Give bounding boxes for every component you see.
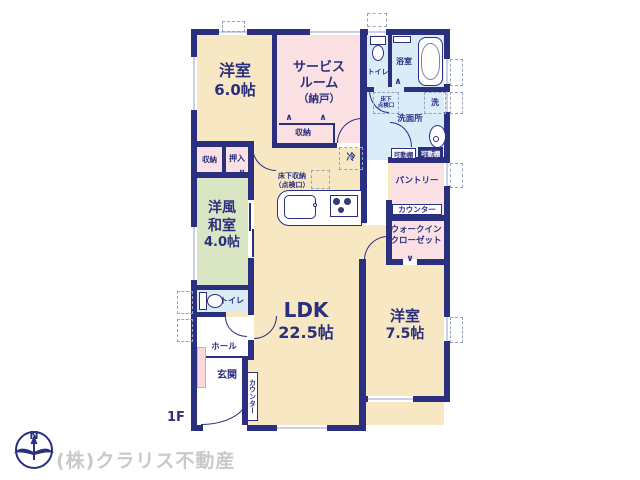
- closet-line: [333, 123, 335, 143]
- window: [368, 396, 413, 402]
- exterior-box: [177, 319, 193, 342]
- room-label-entrance: 玄関: [208, 370, 246, 383]
- wash-basin-drain: [433, 136, 439, 142]
- room-label-toilet-lower: トイレ: [218, 296, 246, 306]
- opening-mark: ∨: [403, 255, 417, 264]
- floor-label: 1F: [167, 410, 193, 425]
- oshiire-label: 押入: [226, 154, 248, 164]
- wall: [359, 259, 366, 431]
- closet-line: [279, 123, 333, 125]
- room-label-washitsu: 洋風 和室 4.0帖: [198, 200, 246, 251]
- washer-label: 洗: [431, 98, 439, 107]
- opening-mark: ∨: [235, 169, 249, 178]
- wall: [413, 396, 450, 402]
- vent-box: [367, 13, 387, 27]
- folding-door-mark: ∧: [316, 114, 330, 123]
- underfloor-inspection-hatch: 床下 点検口: [373, 92, 399, 114]
- closet-label: 収納: [197, 155, 222, 164]
- bathroom-folding-door-mark: ∧: [391, 78, 405, 87]
- window: [277, 425, 327, 431]
- toilet-bowl: [372, 45, 384, 61]
- room-label-bathroom: 浴室: [390, 57, 418, 67]
- service-closet-label: 収納: [283, 128, 323, 138]
- toilet-tank: [199, 292, 207, 310]
- kitchen-faucet: [313, 203, 317, 207]
- wall: [191, 312, 226, 317]
- wall: [386, 29, 450, 35]
- wall: [388, 259, 403, 265]
- ldk-counter: カウンター: [247, 372, 258, 421]
- movable-shelf-label: 可動棚: [394, 149, 414, 159]
- wall: [444, 29, 450, 59]
- sliding-door-line: [252, 229, 254, 257]
- washer-space: 洗: [424, 92, 446, 114]
- door-leaf: [360, 118, 362, 143]
- room-label-wic: ウォークイン クローゼット: [387, 225, 445, 246]
- wall: [277, 143, 337, 148]
- folding-door-mark: ∧: [282, 114, 296, 123]
- wall: [247, 425, 277, 431]
- pantry-counter: カウンター: [392, 204, 442, 215]
- window: [191, 227, 197, 280]
- room-label-service: サービス ルーム （納戸）: [277, 60, 361, 106]
- refrigerator-space: 冷: [339, 147, 363, 170]
- room-label-hall: ホール: [204, 342, 244, 353]
- company-watermark: (株)クラリス不動産: [56, 446, 235, 473]
- wall: [444, 186, 450, 317]
- toilet-tank: [370, 36, 386, 45]
- window-bay: [450, 163, 463, 188]
- kitchen-sink: [284, 195, 316, 219]
- hallway-strip: [366, 160, 388, 225]
- room-label-western6: 洋室 6.0帖: [196, 61, 274, 100]
- underfloor-storage-label: 床下収納 （点検口）: [272, 172, 312, 190]
- vent-box: [222, 21, 245, 32]
- shoe-cabinet: [197, 347, 206, 388]
- wall: [191, 29, 197, 57]
- wall: [191, 285, 254, 290]
- movable-shelf: 可動棚: [391, 148, 416, 159]
- window-bay: [450, 317, 463, 343]
- bath-counter: [393, 36, 411, 43]
- room-label-toilet-upper: トイレ: [365, 68, 391, 77]
- room-label-pantry: パントリー: [391, 176, 443, 187]
- counter-label: カウンター: [248, 379, 258, 414]
- underfloor-hatch-label: 点検口: [378, 103, 395, 109]
- wall: [388, 215, 444, 221]
- underfloor-storage-hatch: [311, 170, 330, 189]
- window-bay: [450, 59, 463, 86]
- floor-plan: ∧ ∧ ∨ ∨ ∧ 冷 床下 点検口 洗 可動棚 可動棚 カウンター カウンター…: [0, 0, 640, 480]
- sliding-door-line: [249, 203, 251, 231]
- room-label-ldk: LDK 22.5帖: [272, 298, 340, 343]
- movable-shelf-label: 可動棚: [421, 148, 441, 158]
- entrance-step-line: [206, 356, 248, 358]
- wall: [191, 110, 197, 227]
- window-bay: [450, 92, 463, 114]
- room-label-washroom: 洗面所: [388, 114, 432, 125]
- counter-label: カウンター: [398, 204, 436, 215]
- wall: [247, 29, 310, 35]
- room-label-western75: 洋室 7.5帖: [379, 307, 431, 343]
- wall: [417, 259, 444, 265]
- refrigerator-label: 冷: [346, 153, 355, 163]
- wall: [444, 341, 450, 402]
- window: [368, 29, 386, 35]
- stove-burner: [333, 198, 340, 205]
- exterior-box: [177, 291, 193, 314]
- stove-burner: [338, 207, 344, 213]
- window: [310, 29, 363, 35]
- movable-shelf: 可動棚: [418, 147, 443, 158]
- stove-burner: [344, 198, 351, 205]
- compass-icon: N: [6, 420, 62, 476]
- wall: [191, 425, 203, 431]
- bathtub-inner: [421, 43, 440, 80]
